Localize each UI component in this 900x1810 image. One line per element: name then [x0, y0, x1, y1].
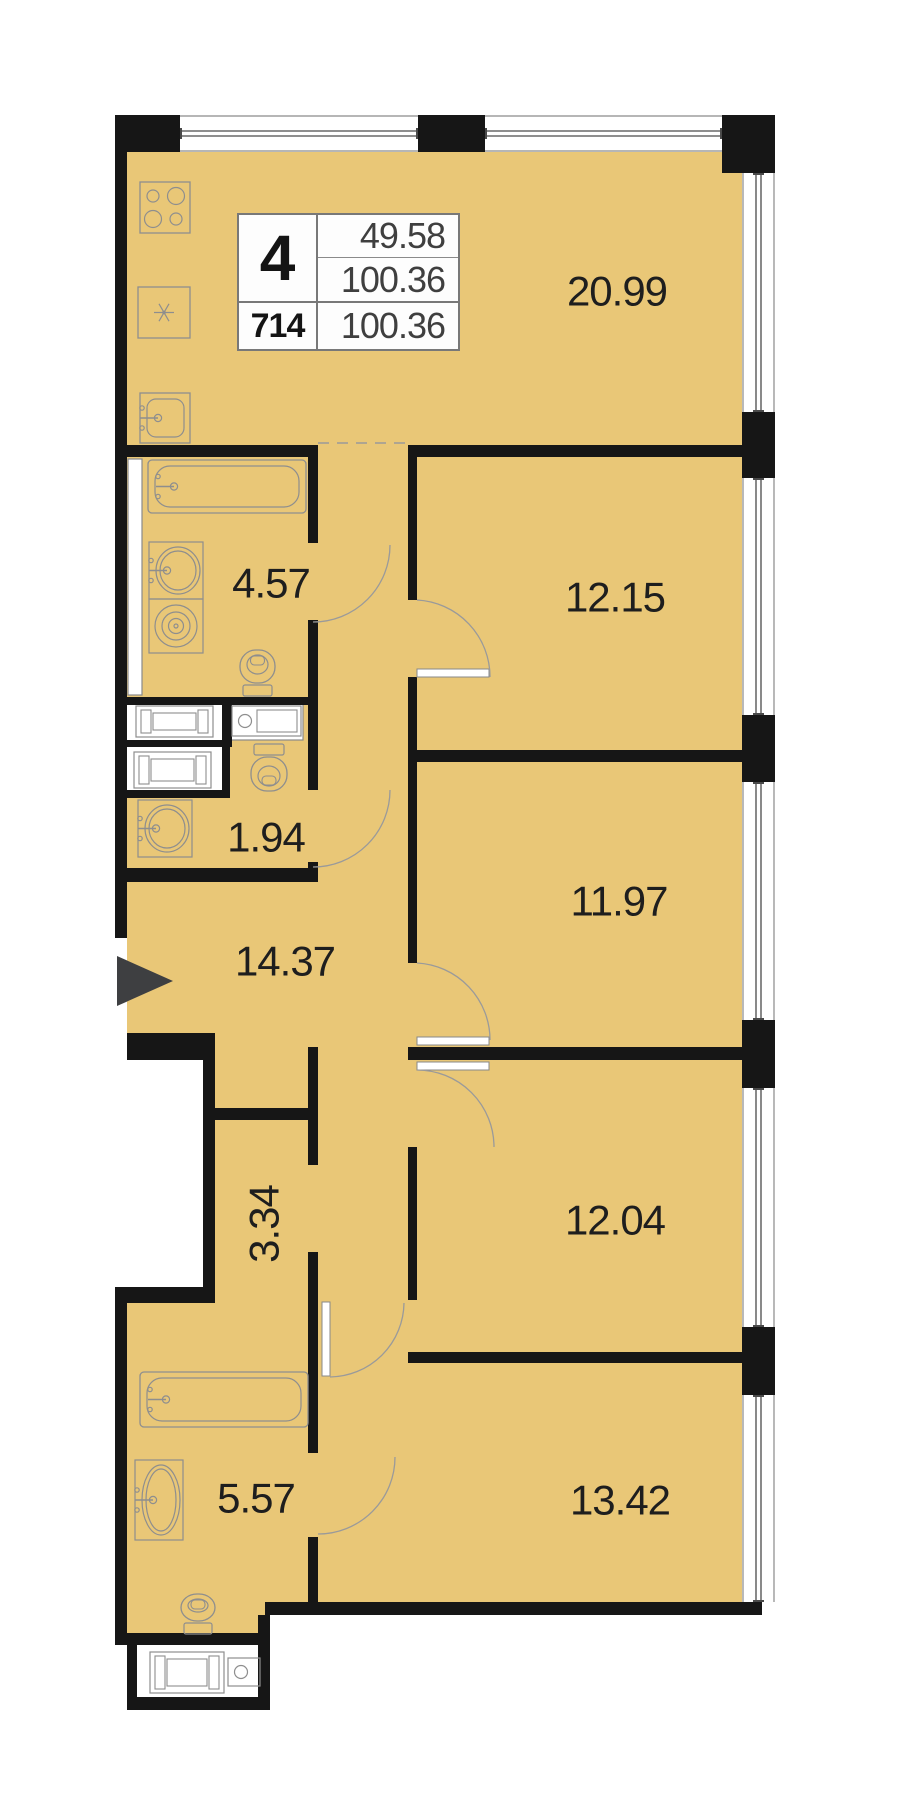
- wall: [408, 1352, 742, 1363]
- wall: [115, 740, 230, 747]
- wall: [215, 1108, 318, 1120]
- floor-area: [127, 1615, 270, 1633]
- wall: [115, 115, 127, 938]
- wall: [127, 790, 230, 798]
- room-label-bathroom-1: 4.57: [232, 560, 310, 607]
- window: [742, 173, 775, 412]
- wall: [127, 115, 180, 152]
- wall: [742, 715, 775, 782]
- room-label-bedroom-1: 12.15: [565, 574, 665, 621]
- room-label-bathroom-2: 5.57: [217, 1475, 295, 1522]
- unit-number: 714: [239, 303, 318, 349]
- wall: [222, 700, 232, 747]
- door-leaf: [417, 1037, 489, 1045]
- wall: [127, 1033, 215, 1060]
- wall: [115, 1303, 127, 1645]
- window: [742, 478, 775, 715]
- floor-area: [127, 1303, 318, 1615]
- wall: [308, 862, 318, 882]
- floor-plan-page: 20.9912.154.571.9414.3711.973.3412.045.5…: [0, 0, 900, 1810]
- wall: [408, 445, 742, 457]
- total-area-value: 100.36: [318, 258, 458, 303]
- wall: [127, 1645, 137, 1703]
- wall: [408, 1047, 742, 1060]
- room-label-wc: 1.94: [227, 814, 305, 861]
- wall: [115, 1287, 215, 1303]
- room-label-kitchen-living: 20.99: [567, 268, 667, 315]
- flat-number: 4: [239, 215, 318, 303]
- window: [742, 782, 775, 1020]
- door-leaf: [417, 1062, 489, 1070]
- wall: [127, 1697, 270, 1710]
- room-label-bedroom-3: 12.04: [565, 1197, 666, 1244]
- door-leaf: [322, 1302, 330, 1376]
- room-label-bedroom-2: 11.97: [571, 878, 668, 925]
- room-label-corridor: 3.34: [241, 1184, 288, 1262]
- room-label-bedroom-4: 13.42: [570, 1477, 670, 1524]
- wall: [127, 1633, 270, 1645]
- wall: [203, 1060, 215, 1303]
- door-leaf: [417, 669, 489, 677]
- washer-niche-2: [230, 702, 303, 740]
- total-area-value-2: 100.36: [318, 303, 458, 349]
- wall: [308, 457, 318, 543]
- wall: [308, 1252, 318, 1453]
- living-area-value: 49.58: [318, 215, 458, 258]
- wall: [722, 115, 775, 173]
- floor-area: [318, 1352, 742, 1603]
- wall: [742, 1020, 775, 1088]
- wall: [408, 677, 417, 750]
- wall: [742, 412, 775, 478]
- wall: [408, 457, 417, 600]
- wall: [308, 1537, 318, 1615]
- snowflake-center: [162, 311, 166, 315]
- wall: [115, 445, 318, 457]
- wall: [308, 1047, 318, 1165]
- wall: [408, 762, 417, 963]
- wall: [408, 1147, 417, 1300]
- wall: [742, 1327, 775, 1395]
- window: [485, 115, 722, 152]
- room-label-hallway: 14.37: [235, 938, 335, 985]
- window: [742, 1088, 775, 1327]
- wall: [308, 620, 318, 790]
- window: [180, 115, 418, 152]
- wall: [418, 115, 485, 152]
- wall: [265, 1602, 762, 1615]
- duct-shaft: [128, 459, 142, 695]
- wall: [222, 747, 230, 797]
- wall: [115, 697, 318, 705]
- window: [742, 1395, 775, 1602]
- wall: [408, 750, 742, 762]
- apartment-info-table: 4 49.58 100.36 714 100.36: [237, 213, 460, 351]
- wall: [115, 868, 318, 882]
